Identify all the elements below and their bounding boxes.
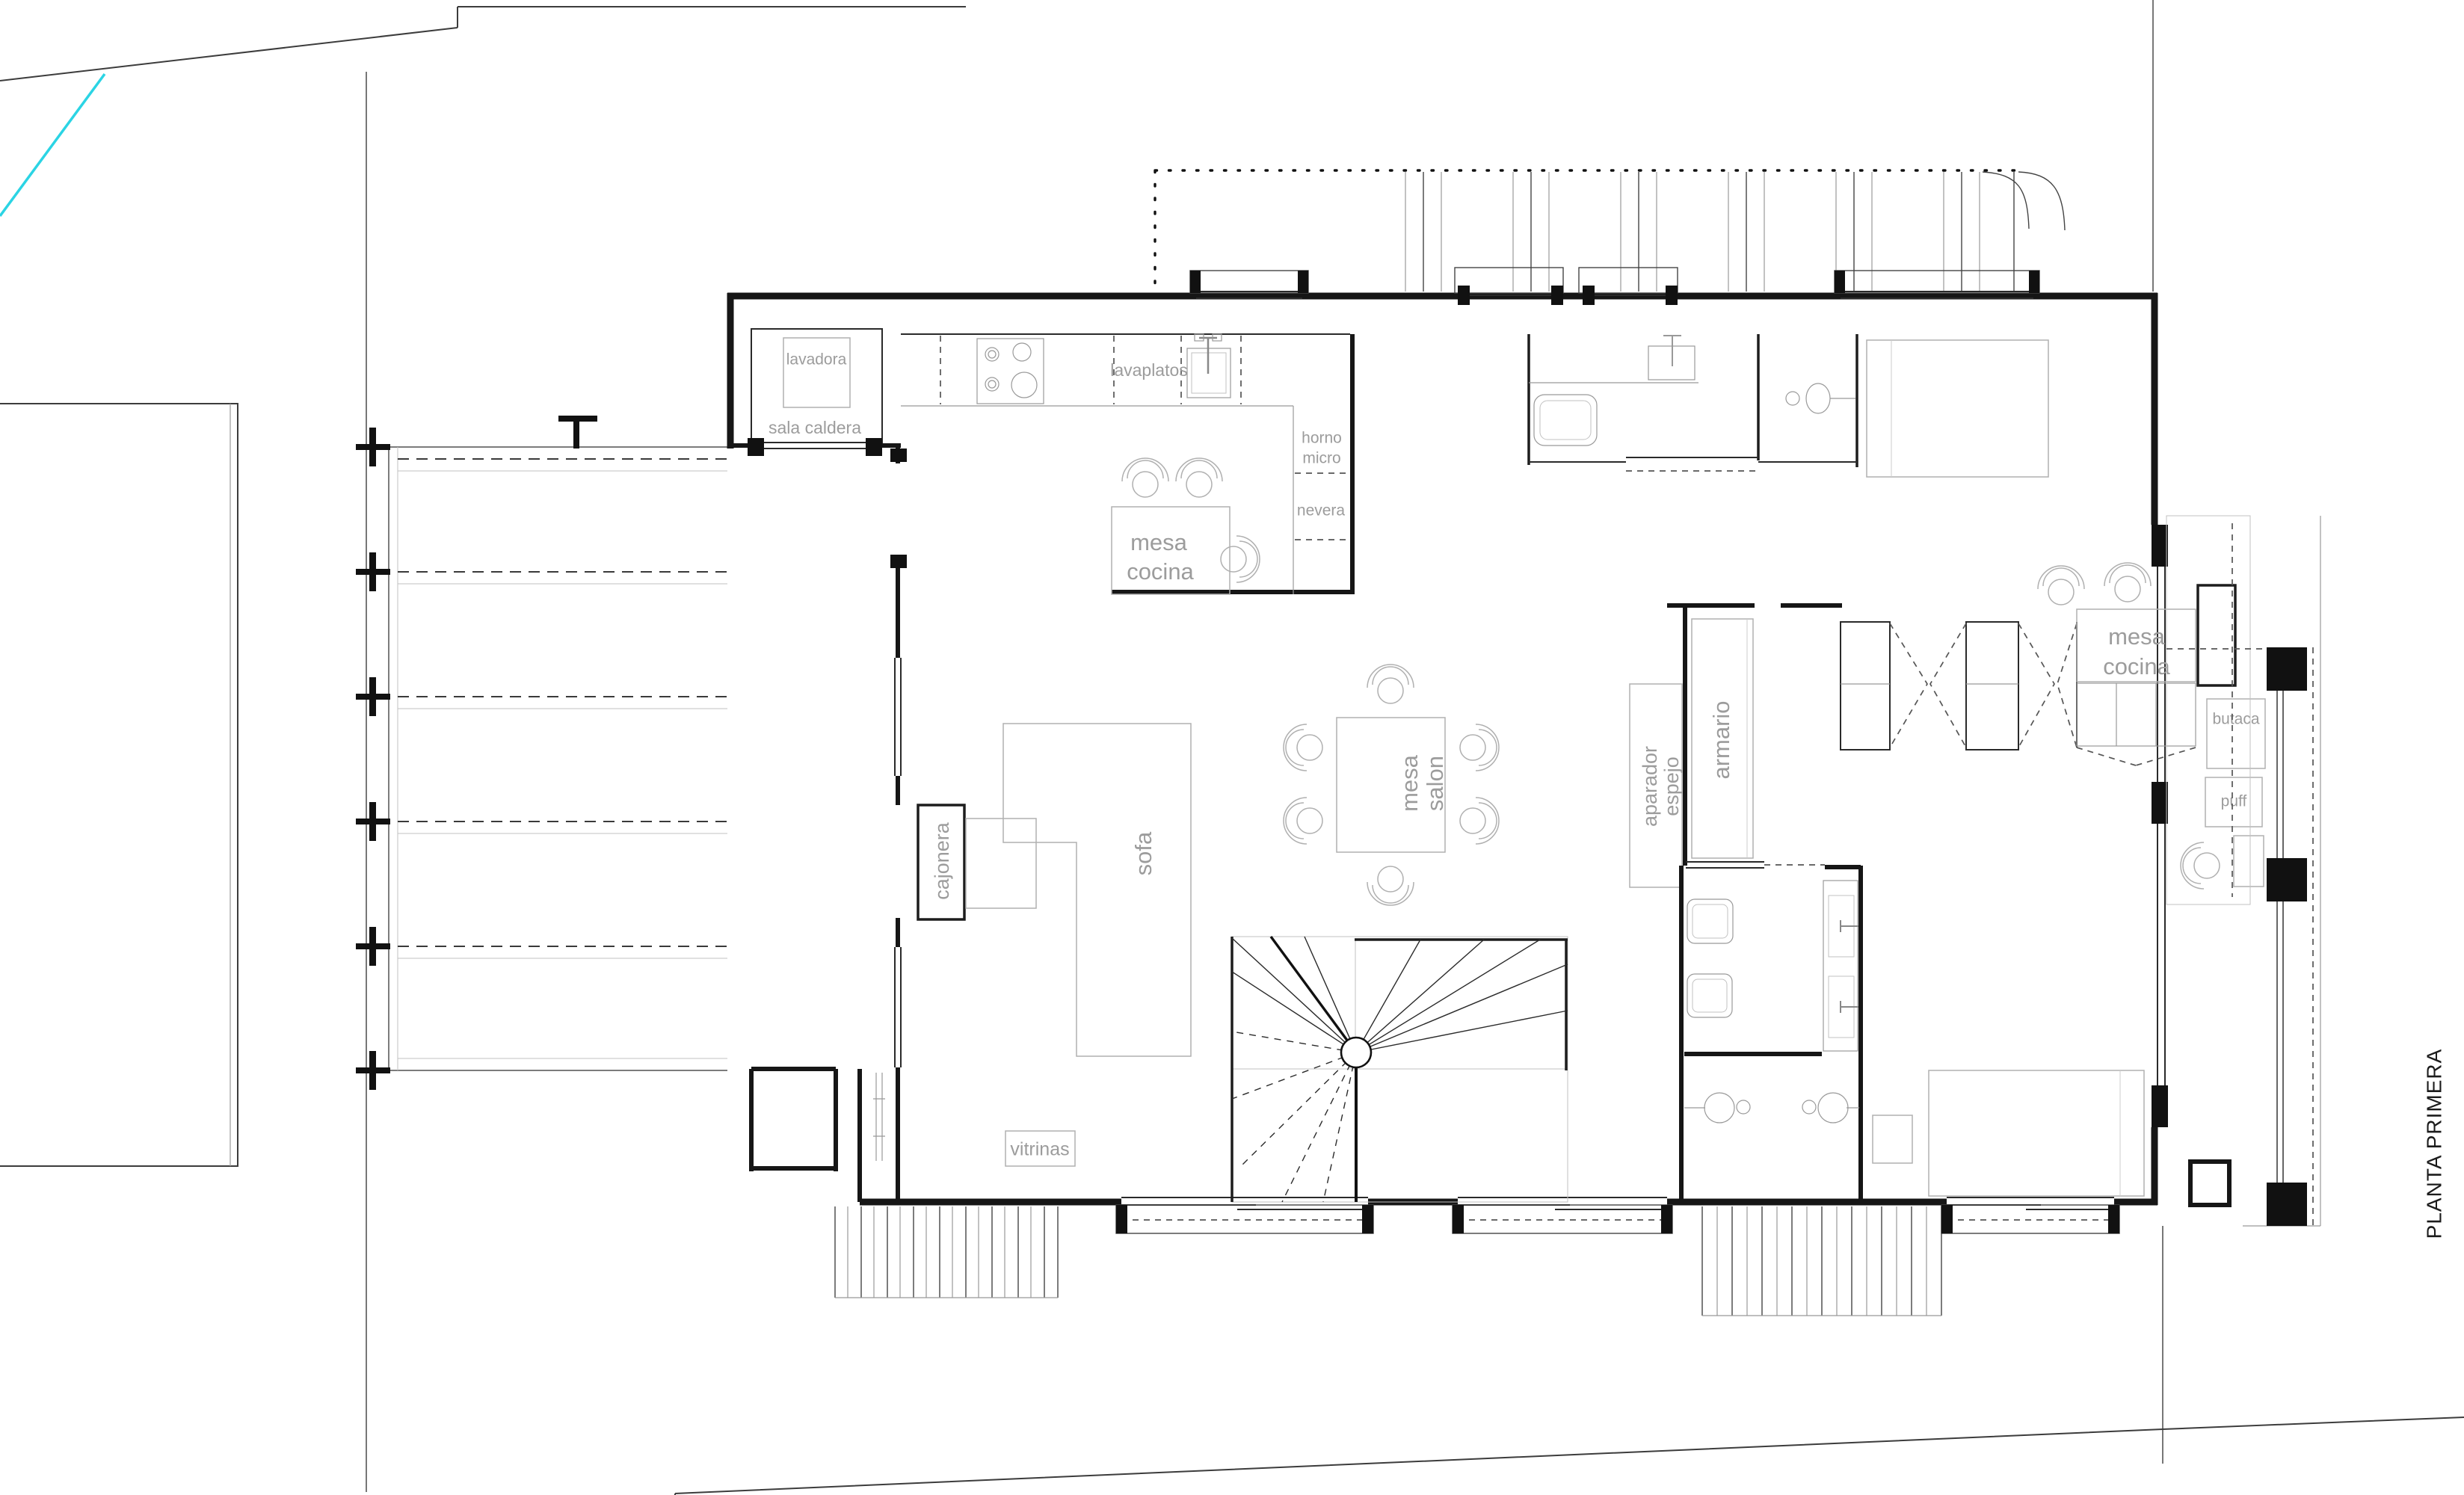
label-mesa-cocina-1b: cocina: [1127, 558, 1194, 585]
exterior-stairs-left: [835, 1206, 1058, 1298]
label-puff: puff: [2221, 793, 2247, 810]
exterior-stairs-right: [1702, 1206, 1941, 1316]
label-aparador: aparador: [1639, 746, 1661, 827]
label-sala-caldera: sala caldera: [769, 418, 861, 437]
pool: [0, 404, 238, 1166]
label-mesa-cocina-1a: mesa: [1130, 529, 1188, 555]
floor-plan-canvas: lavadora sala caldera lavaplatos horno m…: [0, 0, 2464, 1495]
label-vitrinas: vitrinas: [1010, 1139, 1069, 1160]
label-mesa-salon-b: salon: [1422, 756, 1448, 811]
house-footprint: [727, 293, 2157, 1205]
balcony-right: [2166, 516, 2320, 1226]
upper-landing: [1155, 170, 2065, 292]
label-armario: armario: [1708, 700, 1734, 779]
page-title: PLANTA PRIMERA: [2422, 1049, 2445, 1239]
label-horno: horno: [1302, 430, 1342, 447]
label-cajonera: cajonera: [931, 822, 953, 900]
label-micro: micro: [1302, 450, 1340, 467]
label-sofa: sofa: [1130, 831, 1156, 875]
label-nevera: nevera: [1297, 502, 1346, 520]
label-mesa-cocina-2a: mesa: [2108, 623, 2166, 650]
terrace-posts: [356, 416, 597, 1090]
site-accent-line: [0, 74, 105, 216]
label-butaca: butaca: [2212, 711, 2259, 728]
label-mesa-salon-a: mesa: [1396, 754, 1423, 812]
label-lavadora: lavadora: [786, 351, 847, 369]
label-mesa-cocina-2b: cocina: [2103, 653, 2170, 679]
label-espejo: espejo: [1660, 756, 1683, 816]
label-lavaplatos: lavaplatos: [1110, 360, 1188, 380]
